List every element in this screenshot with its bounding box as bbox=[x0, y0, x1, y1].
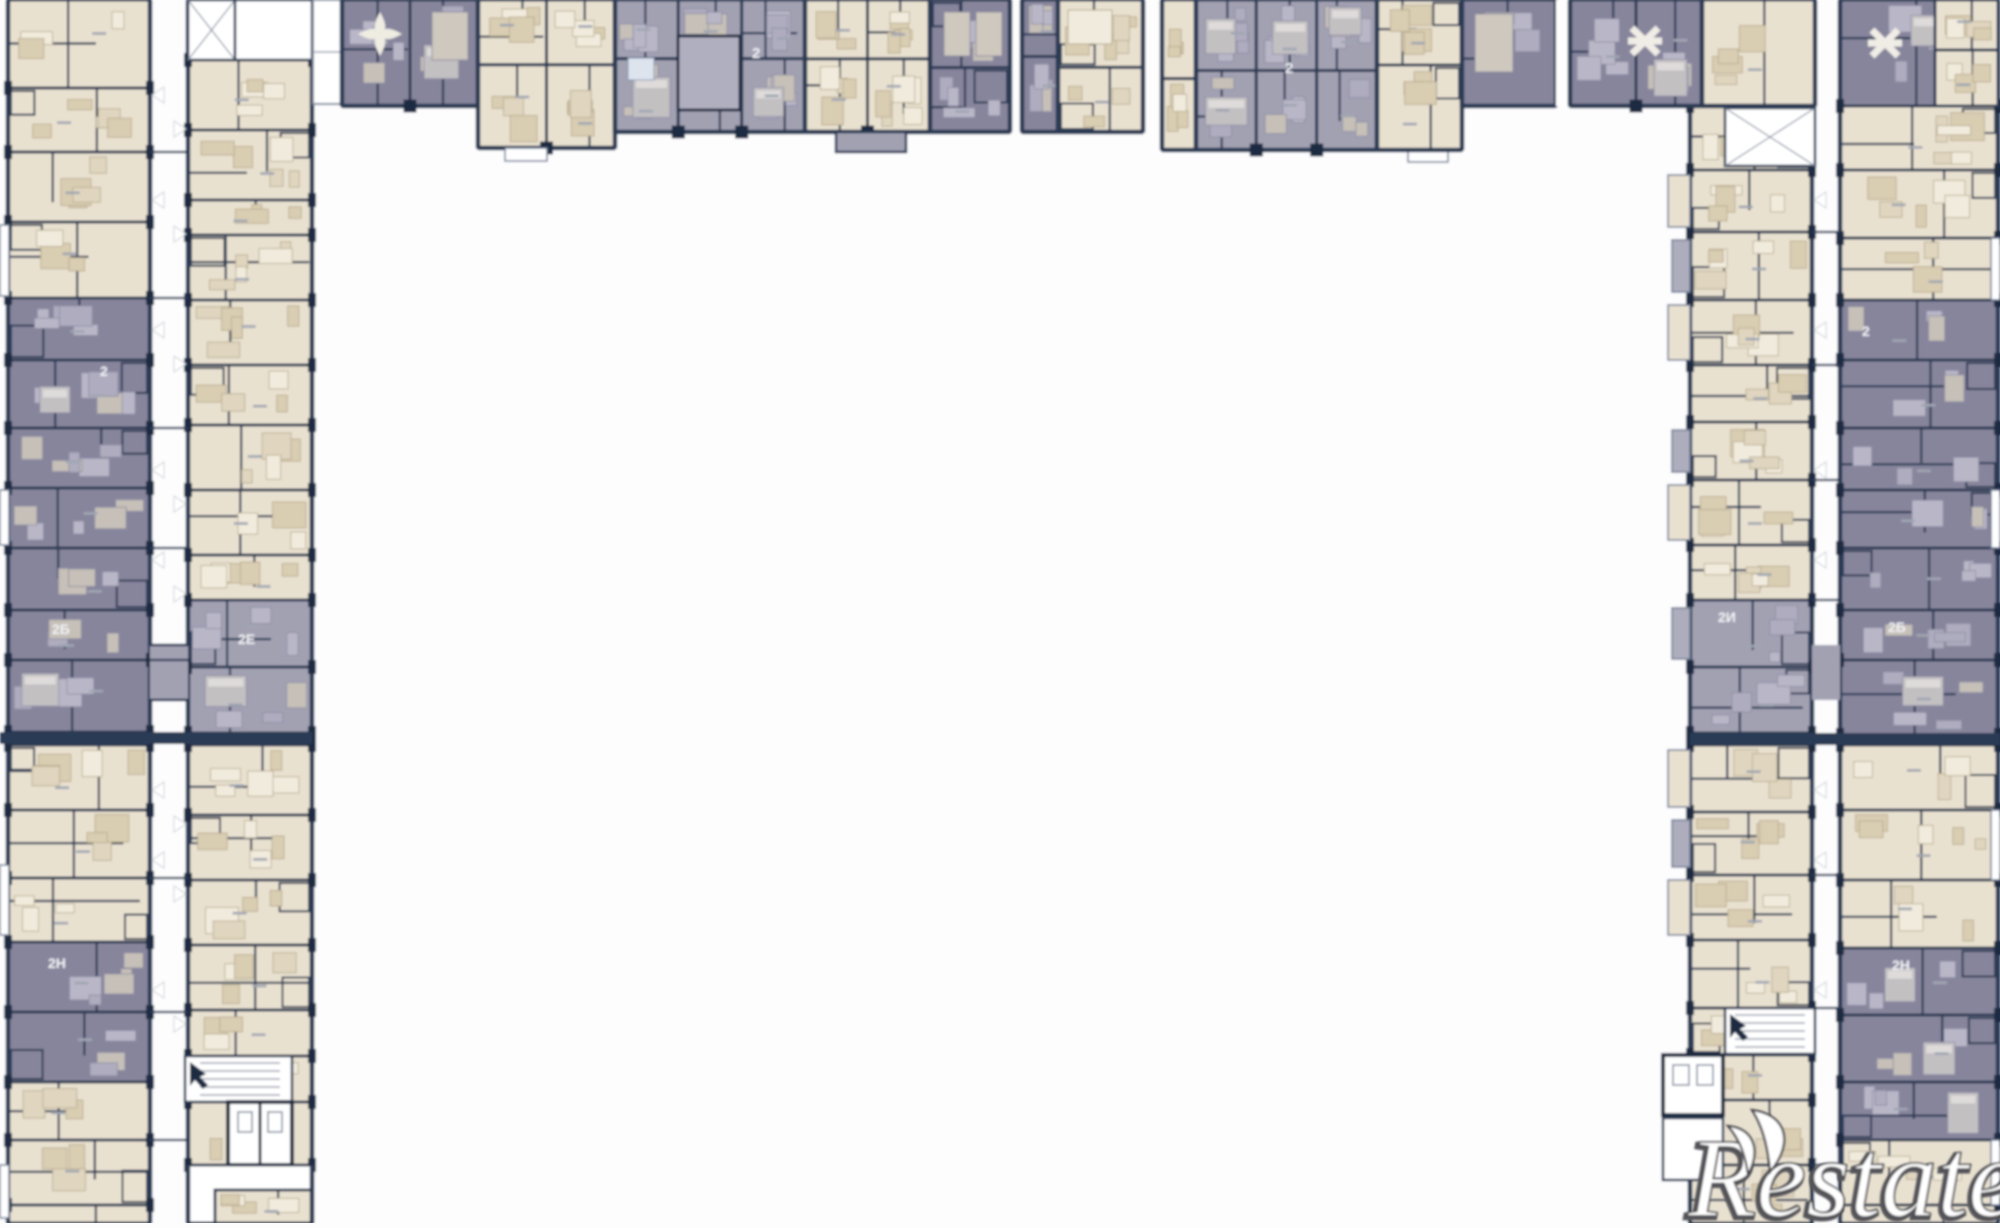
svg-text:2: 2 bbox=[1862, 323, 1870, 339]
svg-text:2Н: 2Н bbox=[48, 955, 66, 971]
svg-text:2: 2 bbox=[100, 363, 108, 379]
svg-text:2Е: 2Е bbox=[238, 631, 255, 647]
svg-text:2Н: 2Н bbox=[1892, 957, 1910, 973]
svg-text:2Б: 2Б bbox=[52, 621, 70, 637]
svg-text:2: 2 bbox=[1285, 60, 1293, 77]
svg-text:2: 2 bbox=[752, 45, 760, 62]
svg-text:2Б: 2Б bbox=[1888, 619, 1906, 635]
svg-text:2И: 2И bbox=[1718, 609, 1736, 625]
